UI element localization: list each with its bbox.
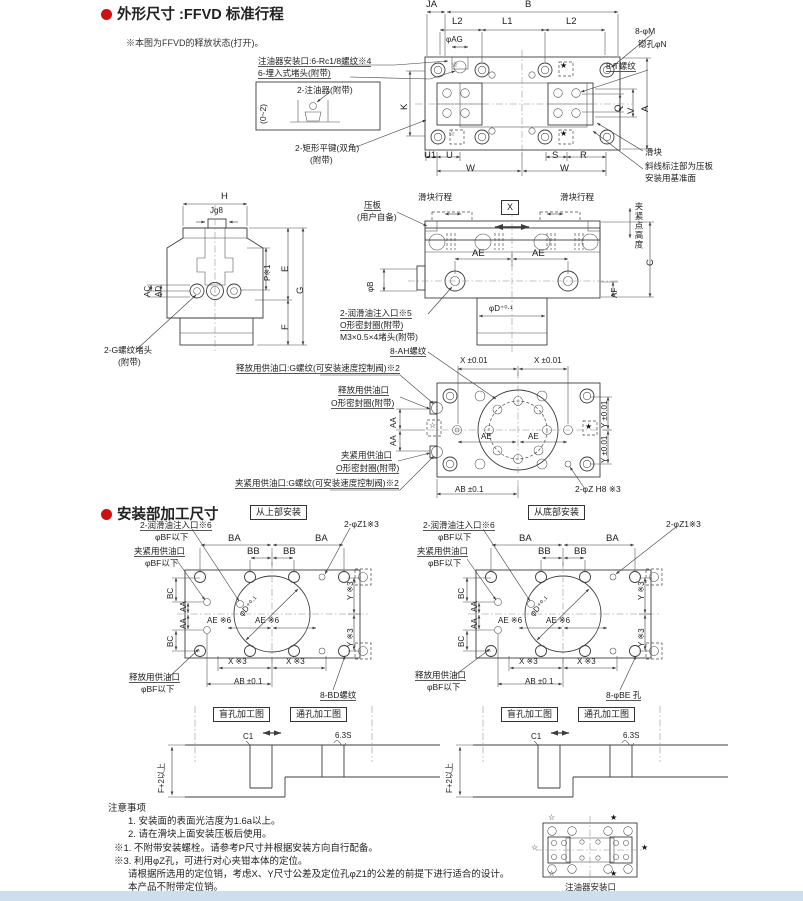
star-open-icon: ☆ (451, 60, 458, 70)
dim-f2-right: F+2以上 (445, 763, 455, 793)
dim-f2-left: F+2以上 (157, 763, 167, 793)
dim-bb-2-right: BB (574, 547, 587, 557)
star-filled-icon: ★ (641, 843, 648, 853)
dim-ag: φAG (446, 35, 463, 45)
star-open-icon: ☆ (448, 129, 455, 139)
dim-y3-2-right: Y ※3 (637, 628, 647, 647)
box-bottom-mount: 从底部安装 (528, 505, 585, 520)
dim-y-tol-2: Y ±0.01 (600, 436, 610, 463)
plug-callout: 6-埋入式堵头(附带) (258, 68, 331, 79)
injector-port-callout: 注油器安装口:6-Rc1/8螺纹※4 (258, 56, 371, 67)
dim-u: U (446, 151, 453, 161)
mnt-bf-2-left: φBF以下 (145, 558, 178, 568)
dim-x3-2-left: X ※3 (286, 657, 305, 667)
dim-a: A (641, 106, 651, 112)
notes-title: 注意事项 (108, 802, 509, 815)
box-through-left: 通孔加工图 (290, 707, 347, 722)
section-outline-header: 外形尺寸 :FFVD 标准行程 (101, 7, 284, 23)
dim-y3-1-right: Y ※3 (637, 581, 647, 600)
mnt-z1-right: 2-φZ1※3 (666, 519, 701, 529)
outline-note: ※本图为FFVD的释放状态(打开)。 (126, 36, 264, 49)
clamp-height-label: 夹紧点高度 (634, 202, 644, 250)
dim-r: R (580, 151, 587, 161)
dim-x-tol-2: X ±0.01 (534, 356, 562, 366)
dim-ac: AC (143, 286, 153, 297)
dim-phid: φD⁺⁰·¹ (489, 304, 513, 314)
note-item: 2. 请在滑块上面安装压板后使用。 (128, 828, 509, 841)
mnt-lube-right: 2-润滑油注入口※6 (423, 520, 495, 531)
note-item: 请根据所选用的定位销，考虑X、Y尺寸公差及定位孔φZ1的公差的前提下进行适合的设… (128, 868, 509, 881)
callout-8ah: 8-AH螺纹 (390, 346, 426, 357)
release-callout-1: 释放用供油口 (338, 385, 389, 396)
dim-s: S (552, 151, 558, 161)
mnt-bf-1-right: φBF以下 (438, 532, 471, 542)
mnt-clamp-right: 夹紧用供油口 (417, 546, 468, 557)
mount-top-view-drawing (168, 528, 371, 690)
dim-aa-1: AA (389, 417, 399, 428)
dim-l2-left: L2 (452, 17, 463, 27)
lube-callout-3: M3×0.5×4堵头(附带) (340, 332, 418, 342)
note-item: ※3. 利用φZ孔，可进行对心夹钳本体的定位。 (114, 855, 509, 868)
star-filled-icon: ★ (560, 61, 567, 71)
star-filled-icon: ★ (560, 129, 567, 139)
dim-l1: L1 (502, 17, 513, 27)
callout-counterbore: 锪孔φN (638, 39, 667, 49)
clamp-g-callout: 夹紧用供油口:G螺纹(可安装速度控制阀)※2 (235, 478, 399, 489)
stroke-label-left: 滑块行程 (418, 192, 452, 202)
dim-b: B (525, 0, 531, 10)
dim-c: C (646, 259, 656, 266)
mnt-lube-left: 2-润滑油注入口※6 (140, 520, 212, 531)
mnt-bf-1-left: φBF以下 (155, 532, 188, 542)
gplug-callout: 2-G螺纹堵头 (104, 345, 152, 355)
presser-callout-2: (用户自备) (357, 212, 397, 222)
box-through-right: 通孔加工图 (578, 707, 635, 722)
dim-c1-left: C1 (243, 732, 253, 742)
drawing-canvas (0, 0, 803, 901)
dim-c1-right: C1 (531, 732, 541, 742)
detail-injector-callout: 2-注油器(附带) (297, 85, 353, 95)
box-blind-left: 盲孔加工图 (213, 707, 270, 722)
gplug-callout-2: (附带) (118, 357, 141, 367)
red-bullet-icon (101, 509, 112, 520)
mnt-bf-2-right: φBF以下 (428, 558, 461, 568)
mnt-ae6-2-right: AE ※6 (546, 616, 570, 626)
notes-block: 注意事项 1. 安装面的表面光洁度为1.6a以上。 2. 请在滑块上面安装压板后… (108, 802, 509, 894)
dim-f: F (281, 324, 291, 330)
section-outline-title: 外形尺寸 :FFVD 标准行程 (117, 7, 284, 23)
dim-ba-2-left: BA (315, 534, 328, 544)
dim-ja: JA (426, 0, 437, 10)
dim-ba-1-right: BA (519, 534, 532, 544)
dim-ae-1: AE (472, 249, 485, 259)
star-filled-icon: ★ (585, 422, 592, 432)
dim-y3-1-left: Y ※3 (346, 581, 356, 600)
dim-x3-1-left: X ※3 (228, 657, 247, 667)
dim-bc-1-right: BC (457, 588, 467, 599)
dim-l2-right: L2 (566, 17, 577, 27)
dim-aa-2-right: AA (470, 618, 480, 629)
dim-k: K (400, 104, 410, 110)
callout-datum-1: 斜线标注部为压板 (645, 161, 713, 171)
dim-ae-2: AE (532, 249, 545, 259)
note-item: 1. 安装面的表面光洁度为1.6a以上。 (128, 815, 509, 828)
mnt-ae6-1-right: AE ※6 (498, 616, 522, 626)
clamp-callout-2: O形密封圈(附带) (336, 463, 399, 474)
key-callout: 2-矩形平键(双角) (295, 143, 359, 153)
mnt-clamp-left: 夹紧用供油口 (134, 546, 185, 557)
mnt-bf-3-right: φBF以下 (427, 682, 460, 692)
dim-v: V (627, 108, 637, 114)
dim-e: E (281, 266, 291, 272)
dim-y-tol-1: Y ±0.01 (600, 401, 610, 428)
callout-8m: 8-φM (635, 26, 655, 36)
dim-p: P※1 (263, 265, 273, 282)
lube-callout-1: 2-润滑油注入口※5 (340, 308, 412, 319)
dim-g: G (296, 287, 306, 294)
dim-ab: AB ±0.1 (455, 485, 483, 495)
callout-2phiz: 2-φZ H8 ※3 (575, 484, 621, 494)
dim-bb-1-left: BB (247, 547, 260, 557)
technical-drawing-page: 外形尺寸 :FFVD 标准行程 ※本图为FFVD的释放状态(打开)。 安装部加工… (0, 0, 803, 901)
dim-aa-1-right: AA (470, 601, 480, 612)
box-top-mount: 从上部安装 (250, 505, 307, 520)
dim-bc-2-right: BC (457, 636, 467, 647)
callout-slider: 滑块 (645, 147, 662, 157)
callout-8bd: 8-BD螺纹 (320, 690, 356, 701)
star-open-icon: ☆ (531, 843, 538, 853)
dim-q: Q (614, 105, 624, 112)
dim-ab-right: AB ±0.1 (525, 677, 553, 687)
callout-datum-2: 安装用基准面 (645, 173, 696, 183)
dim-u1: U1 (424, 151, 436, 161)
mnt-z1-left: 2-φZ1※3 (344, 519, 379, 529)
dim-ad: AD (154, 286, 164, 297)
star-open-icon: ☆ (548, 869, 555, 879)
footer-band (0, 891, 803, 901)
dim-aa-2-left: AA (179, 618, 189, 629)
dim-x3-2-right: X ※3 (577, 657, 596, 667)
callout-8be: 8-φBE 孔 (606, 690, 641, 701)
dim-x3-1-right: X ※3 (519, 657, 538, 667)
dim-aa-1-left: AA (179, 601, 189, 612)
star-open-icon: ☆ (429, 421, 436, 431)
mnt-ae6-1-left: AE ※6 (207, 616, 231, 626)
lube-callout-2: O形密封圈(附带) (340, 320, 403, 331)
presser-callout: 压板 (364, 200, 381, 211)
note-item: ※1. 不附带安装螺栓。请参考P尺寸并根据安装方向自行配备。 (114, 842, 509, 855)
dim-ae-4: AE (528, 432, 539, 442)
dim-bc-1-left: BC (166, 588, 176, 599)
box-blind-right: 盲孔加工图 (501, 707, 558, 722)
release-g-callout: 释放用供油口:G螺纹(可安装速度控制阀)※2 (236, 363, 400, 374)
dim-h: H (221, 192, 228, 202)
dim-bc-2-left: BC (166, 636, 176, 647)
dim-ba-1-left: BA (228, 534, 241, 544)
flange-view-drawing (396, 366, 612, 498)
dim-ba-2-right: BA (606, 534, 619, 544)
finish-mark-right: 6.3S (623, 731, 639, 741)
dim-aa-2: AA (389, 435, 399, 446)
mnt-release-right: 释放用供油口 (415, 670, 466, 681)
x-stroke-box: X (501, 200, 519, 215)
mnt-bf-3-left: φBF以下 (141, 684, 174, 694)
dim-phib: φB (366, 281, 376, 292)
release-callout-2: O形密封圈(附带) (331, 398, 394, 409)
mnt-ae6-2-left: AE ※6 (255, 616, 279, 626)
mnt-release-left: 释放用供油口 (129, 672, 180, 683)
callout-8t: 8-T螺纹 (606, 61, 636, 72)
dim-w-right: W (560, 164, 569, 174)
dim-j: Jg8 (210, 206, 223, 216)
star-filled-icon: ★ (610, 813, 617, 823)
dim-ab-left: AB ±0.1 (234, 677, 262, 687)
finish-mark-left: 6.3S (335, 731, 351, 741)
dim-y3-2-left: Y ※3 (346, 628, 356, 647)
mount-bottom-view-drawing (454, 527, 676, 690)
star-open-icon: ☆ (548, 813, 555, 823)
star-filled-icon: ★ (610, 869, 617, 879)
injector-port-label: 注油器安装口 (565, 882, 616, 892)
clamp-callout-1: 夹紧用供油口 (341, 450, 392, 461)
dim-ae-3: AE (481, 432, 492, 442)
red-bullet-icon (101, 9, 112, 20)
detail-range-label: (0~2) (258, 104, 268, 124)
dim-bb-1-right: BB (538, 547, 551, 557)
stroke-label-right: 滑块行程 (560, 192, 594, 202)
dim-bb-2-left: BB (283, 547, 296, 557)
dim-x-tol-1: X ±0.01 (460, 356, 488, 366)
dim-af: AF (610, 288, 620, 298)
key-callout-2: (附带) (310, 155, 333, 165)
dim-w-left: W (466, 164, 475, 174)
